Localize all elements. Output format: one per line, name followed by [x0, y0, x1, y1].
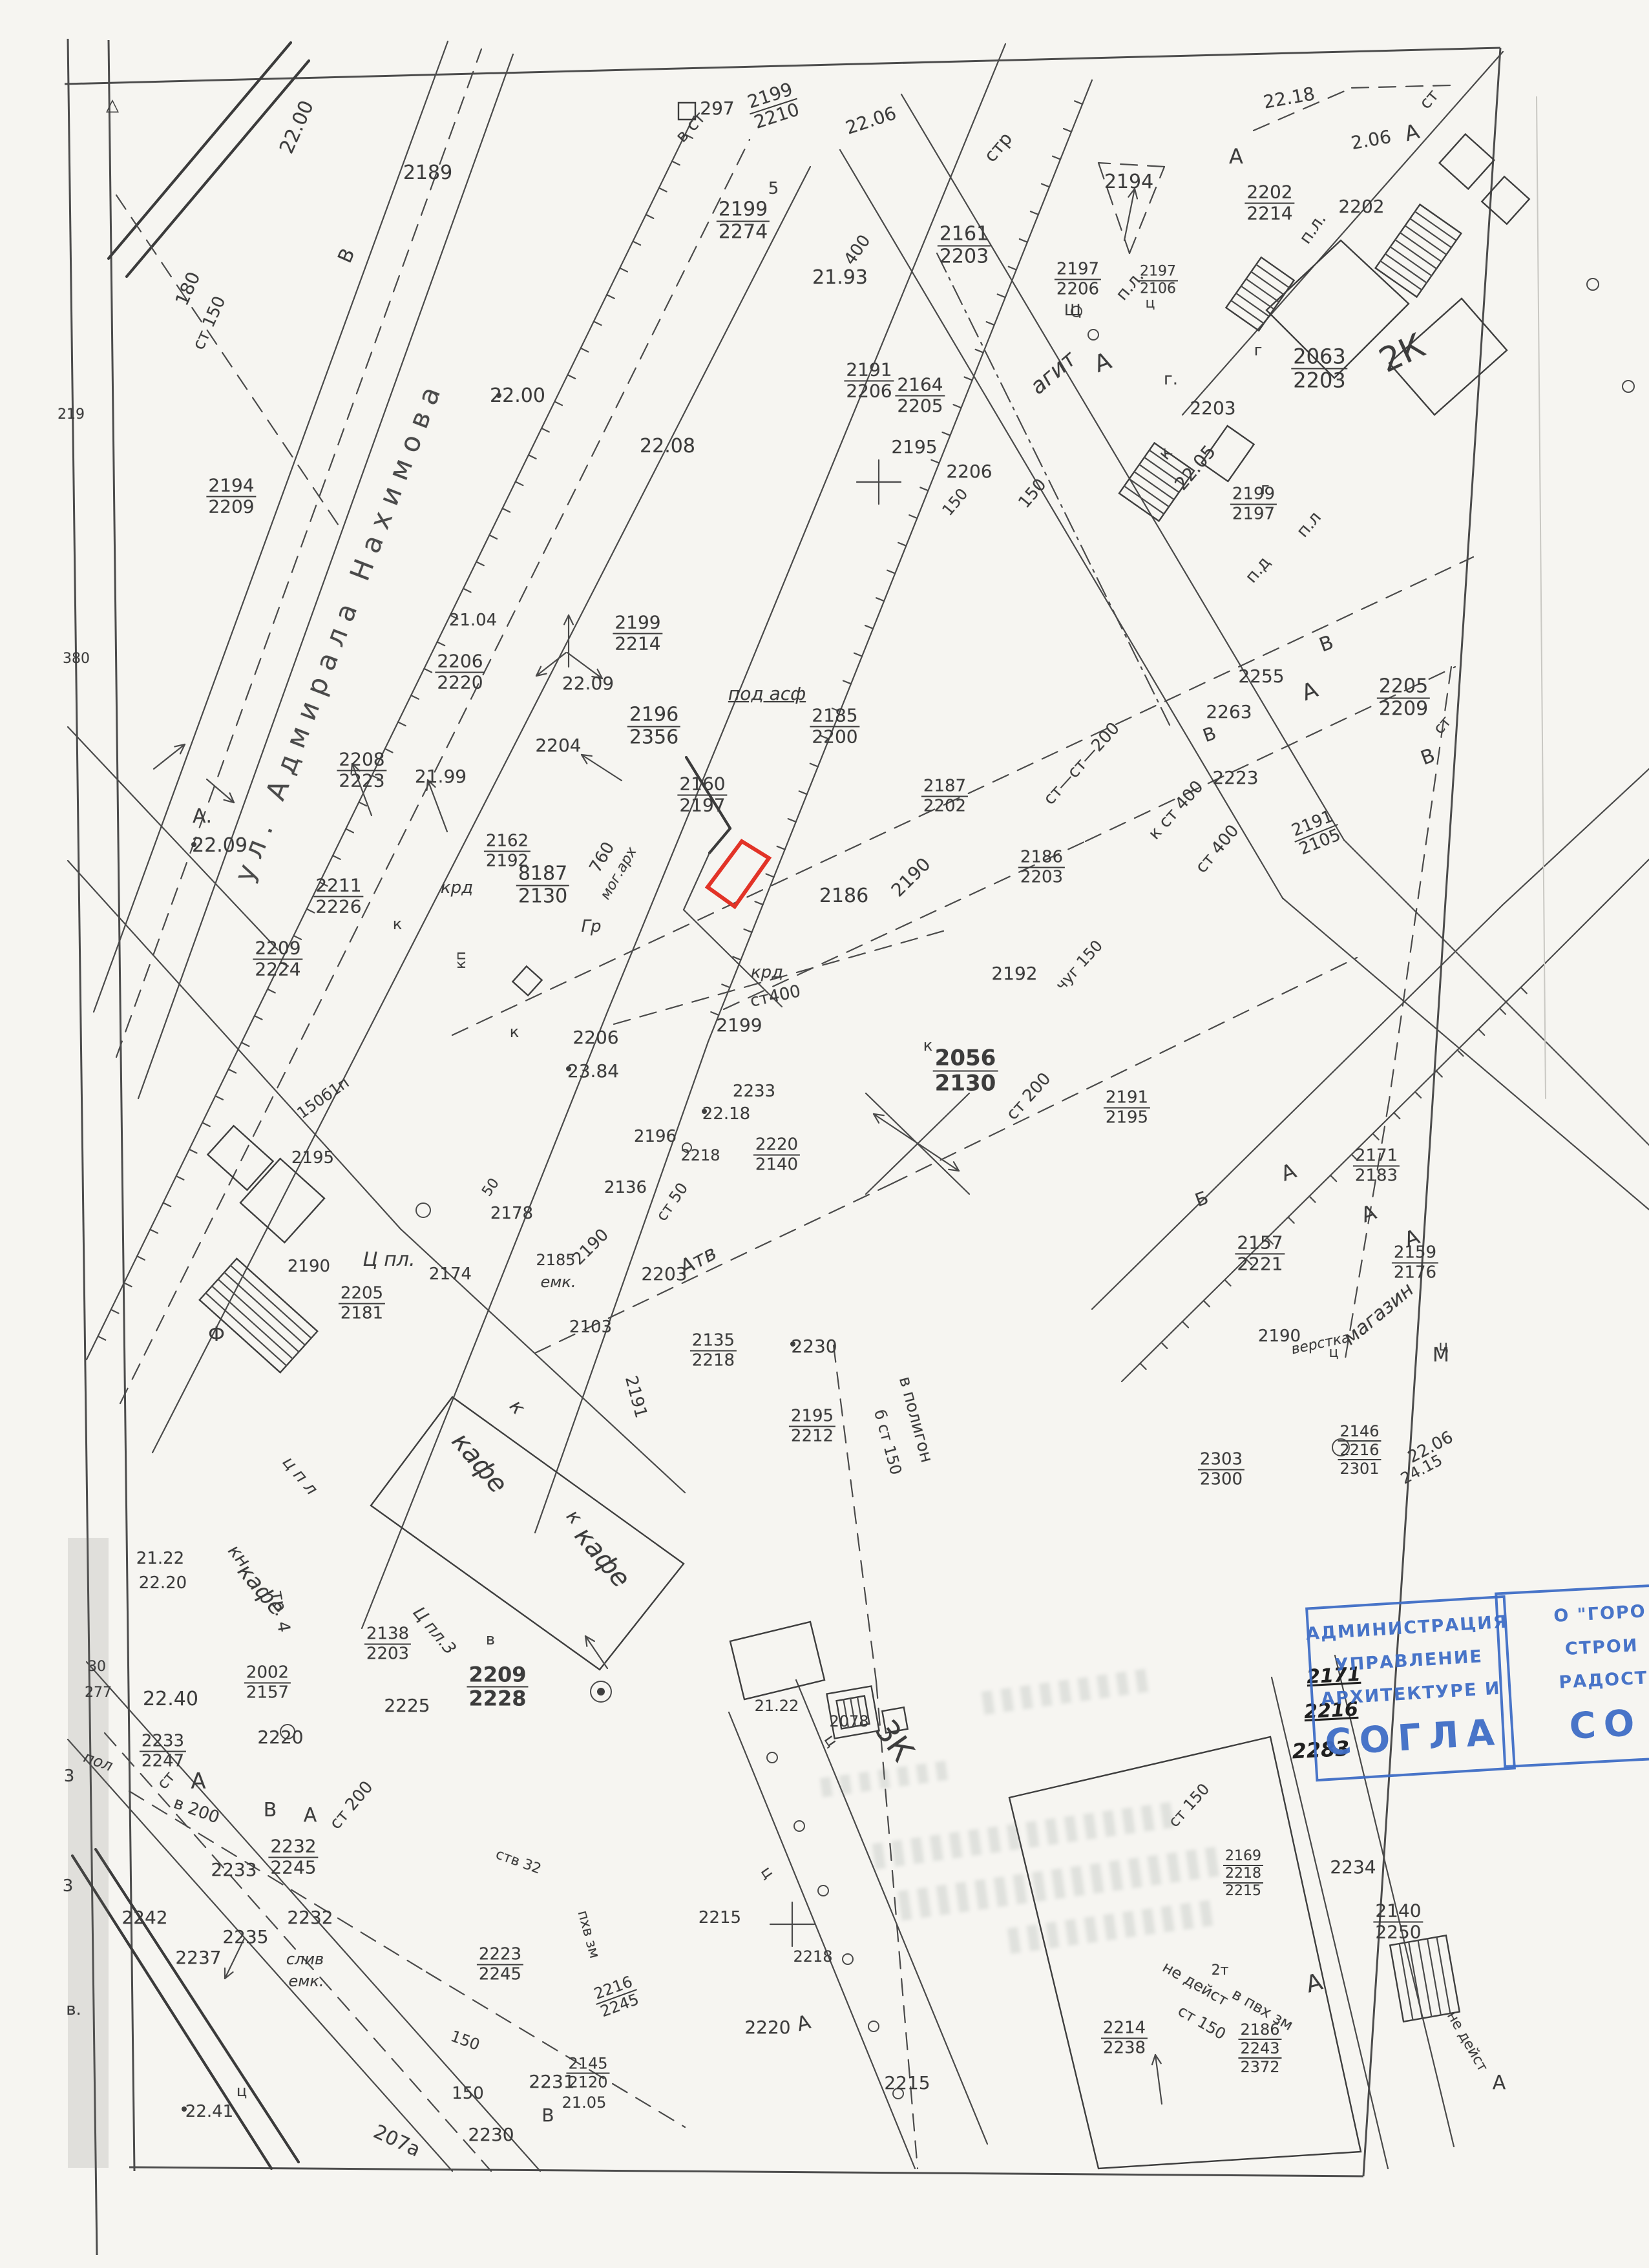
map-label: 21992214	[613, 614, 662, 653]
map-label: 23032300	[1198, 1451, 1245, 1488]
road-line	[1537, 97, 1546, 1098]
well-circle	[1587, 278, 1599, 290]
map-label: под асф	[728, 685, 806, 703]
elevation-value: 2164	[895, 376, 945, 397]
fence-tick	[620, 268, 627, 272]
stamp-right-big-text: СО	[1568, 1702, 1643, 1748]
map-label: 2195	[291, 1150, 334, 1166]
fence-tick	[865, 625, 873, 629]
map-label: крд	[441, 879, 473, 896]
stamp-text-line: УПРАВЛЕНИЕ	[1334, 1646, 1484, 1675]
map-label: △	[106, 97, 119, 114]
fence-tick	[755, 901, 763, 905]
elevation-value: 2245	[270, 1859, 316, 1877]
elevation-value: 2214	[1246, 205, 1292, 223]
elevation-value: 2197	[1138, 265, 1178, 282]
fence-tick	[1224, 1280, 1230, 1286]
utility-line	[1352, 85, 1451, 88]
elevation-value: 2160	[677, 775, 727, 796]
utility-line	[937, 253, 1170, 725]
elevation-value: 2187	[921, 778, 968, 797]
map-label: 20562130	[933, 1047, 998, 1095]
map-label: 22052209	[1377, 677, 1430, 719]
fence-tick	[268, 989, 275, 993]
map-label: 297	[700, 100, 734, 118]
fence-tick	[346, 829, 353, 833]
map-label: 22.18	[702, 1106, 750, 1122]
map-label: 2234	[1330, 1858, 1376, 1876]
elevation-value: 2140	[1373, 1902, 1423, 1923]
elevation-value: 2205	[1377, 677, 1430, 699]
map-label: А	[1229, 146, 1243, 167]
fence-tick	[1031, 211, 1038, 215]
elevation-value: 2209	[467, 1664, 528, 1688]
elevation-value: 2301	[1339, 1461, 1379, 1476]
approval-stamp-right: О "ГОРОСТРОИРАДОСТ СО	[1495, 1582, 1649, 1768]
map-label: В	[264, 1801, 277, 1820]
elevation-value: 2202	[923, 798, 966, 815]
elevation-value: 2238	[1103, 2040, 1146, 2057]
elevation-value: 2221	[1237, 1255, 1283, 1274]
fence-tick	[876, 598, 884, 601]
fence-tick	[788, 819, 796, 822]
highlighted-parcel	[708, 841, 769, 907]
fence-tick	[920, 487, 928, 490]
utility-line	[834, 1345, 876, 1681]
utility-line	[116, 49, 481, 1057]
map-label: 2190	[288, 1258, 330, 1275]
map-label: 22202140	[753, 1137, 800, 1173]
map-label: 216922182215	[1223, 1849, 1263, 1898]
map-label: 2255	[1238, 667, 1284, 686]
map-label: А	[191, 1770, 205, 1792]
elevation-value: 2130	[935, 1073, 996, 1095]
map-label: В	[541, 2106, 554, 2125]
map-label: 22142238	[1101, 2020, 1148, 2057]
elevation-value: 2303	[1198, 1451, 1245, 1471]
elevation-value: 2203	[940, 247, 989, 267]
building-hatch	[1124, 486, 1164, 514]
building-outline	[1376, 204, 1462, 297]
stamp-text-line: СТРОИ	[1564, 1635, 1639, 1659]
fence-tick	[766, 874, 774, 877]
fence-tick	[953, 404, 961, 408]
elevation-value: 2176	[1394, 1265, 1436, 1281]
fence-tick	[633, 241, 640, 245]
map-label: А.	[193, 807, 212, 826]
elevation-value: 2243	[1238, 2041, 1281, 2059]
elevation-value: 2196	[627, 706, 680, 728]
well-circle	[1623, 381, 1634, 392]
well-circle	[843, 1954, 853, 1964]
map-label: 5	[768, 180, 779, 197]
map-label: 2232	[287, 1909, 333, 1927]
map-label: кп	[454, 951, 468, 969]
elevation-value: 2224	[255, 961, 300, 979]
map-label: 81872130	[516, 865, 569, 907]
elevation-value: 2212	[791, 1428, 834, 1445]
map-label: ц	[1146, 297, 1155, 311]
elevation-value: 2197	[1232, 506, 1275, 523]
road-line	[709, 828, 730, 853]
road-line	[127, 61, 309, 277]
elevation-value: 2195	[1106, 1109, 1148, 1126]
fence-tick	[163, 1202, 171, 1206]
map-label: 22.08	[640, 437, 695, 456]
fence-tick	[437, 642, 445, 646]
elevation-value: 2218	[692, 1352, 735, 1369]
map-label: 21.99	[415, 768, 467, 786]
elevation-value: 2205	[897, 397, 943, 415]
map-label: 21972206	[1055, 261, 1101, 298]
map-label: 20022157	[244, 1664, 291, 1701]
left-margin-shading	[68, 1538, 109, 2168]
map-label: 2136	[604, 1179, 647, 1196]
road-line	[109, 43, 291, 258]
elevation-value: 2247	[142, 1753, 184, 1770]
map-label: 21.22	[755, 1698, 799, 1714]
fence-tick	[998, 294, 1005, 297]
arrow-line	[582, 755, 622, 781]
map-label: 150	[452, 2085, 484, 2102]
map-label: 21992274	[717, 200, 770, 242]
map-label: ц	[1439, 1339, 1449, 1354]
road-line	[607, 44, 1005, 1012]
fence-tick	[1521, 987, 1527, 993]
fence-tick	[1478, 1029, 1484, 1035]
building-hatch	[1129, 479, 1169, 507]
map-label: 2178	[490, 1205, 533, 1222]
map-label: к	[510, 1024, 520, 1040]
well-circle	[416, 1203, 430, 1217]
map-label: 2263	[1206, 703, 1252, 721]
building-hatch	[1241, 286, 1274, 310]
elevation-value: 2203	[1020, 869, 1063, 886]
fence-tick	[228, 1069, 236, 1073]
map-label: 21872202	[921, 778, 968, 815]
fence-tick	[1053, 156, 1060, 160]
fence-tick	[1436, 1071, 1442, 1076]
map-label: крд	[751, 964, 783, 981]
map-label: 21352218	[690, 1332, 737, 1369]
fence-tick	[744, 929, 751, 932]
fence-tick	[150, 1230, 158, 1234]
fence-tick	[255, 1016, 262, 1020]
map-label: 22232245	[477, 1946, 523, 1983]
map-label: к	[923, 1038, 933, 1053]
fence-tick	[1075, 101, 1082, 104]
elevation-value: 2233	[140, 1733, 186, 1752]
fence-tick	[1394, 1113, 1400, 1118]
map-label: 21.22	[136, 1550, 184, 1567]
fence-tick	[722, 984, 730, 987]
elevation-value: 2200	[812, 728, 857, 746]
map-label: А	[304, 1806, 317, 1825]
elevation-value: 2203	[366, 1646, 409, 1663]
map-label: 2204	[535, 737, 581, 755]
arrow-line	[585, 1636, 607, 1668]
fence-tick	[854, 653, 862, 656]
map-label: ц	[1329, 1346, 1339, 1360]
fence-tick	[489, 535, 497, 539]
map-label: 2233	[211, 1861, 257, 1879]
map-label: 21912195	[1104, 1089, 1150, 1126]
map-label: 2194	[1104, 173, 1153, 192]
elevation-value: 2300	[1200, 1471, 1243, 1488]
elevation-value: 2209	[208, 498, 254, 516]
fence-tick	[215, 1096, 223, 1100]
map-frame-line	[129, 2167, 1363, 2176]
fence-tick	[333, 856, 341, 859]
map-label: 2215	[884, 2074, 930, 2092]
map-label: 21.05	[562, 2095, 607, 2110]
fence-tick	[124, 1283, 132, 1286]
fence-tick	[810, 764, 818, 767]
arrow-line	[154, 744, 185, 769]
road-line	[1122, 971, 1538, 1381]
map-label: 2185	[536, 1252, 575, 1268]
fence-tick	[424, 669, 432, 673]
fence-tick	[1042, 184, 1049, 187]
elevation-value: 2157	[1235, 1234, 1285, 1255]
fence-tick	[1161, 1343, 1167, 1349]
map-label: 22022214	[1245, 184, 1294, 223]
elevation-value: 2002	[244, 1664, 291, 1684]
fence-tick	[1500, 1008, 1506, 1014]
map-frame-line	[109, 40, 134, 2171]
map-label: 22082223	[337, 751, 386, 790]
fence-tick	[976, 350, 983, 353]
elevation-value: 2245	[479, 1966, 521, 1983]
map-label: А	[1493, 2074, 1506, 2093]
map-label: 22.00	[490, 386, 545, 406]
map-label: 22052181	[339, 1285, 385, 1322]
stamp-text-line: РАДОСТ	[1559, 1668, 1648, 1693]
building-hatch	[1236, 293, 1269, 317]
road-line	[68, 1739, 452, 2171]
map-label: 21852200	[810, 707, 859, 746]
elevation-value: 2199	[613, 614, 662, 635]
fence-tick	[1020, 239, 1027, 242]
map-label: 23.84	[567, 1062, 619, 1080]
map-label: 21912206	[844, 361, 894, 401]
map-label: 21712183	[1353, 1148, 1400, 1184]
road-line	[1283, 898, 1649, 1210]
map-label: Ф	[208, 1325, 225, 1345]
elevation-value: 2181	[341, 1305, 383, 1322]
building-outline	[371, 1397, 684, 1670]
stamp-text-line: АРХИТЕКТУРЕ И	[1321, 1679, 1502, 1710]
elevation-value: 2171	[1353, 1148, 1400, 1167]
elevation-value: 2223	[477, 1946, 523, 1966]
map-label: 22092224	[253, 940, 302, 979]
fence-tick	[843, 680, 851, 684]
fence-tick	[799, 791, 807, 794]
map-label: 2195	[891, 438, 937, 456]
fence-tick	[1204, 1301, 1210, 1307]
fence-tick	[463, 589, 471, 593]
point-dot	[597, 1688, 605, 1696]
map-frame-line	[65, 48, 1500, 84]
fence-tick	[529, 455, 536, 459]
elevation-value: 2195	[789, 1408, 835, 1427]
map-label: 2174	[429, 1266, 472, 1283]
utility-line	[1098, 163, 1164, 167]
map-label: 2т	[1212, 1964, 1229, 1978]
arrow-line	[428, 780, 447, 832]
map-label: 2230	[468, 2126, 514, 2144]
building-outline	[1440, 134, 1495, 189]
fence-tick	[1140, 1363, 1146, 1369]
map-label: 21862203	[1018, 849, 1065, 886]
elevation-value: 2140	[755, 1157, 798, 1173]
fence-tick	[607, 295, 614, 299]
map-label: 2220	[744, 2019, 790, 2037]
elevation-value: 2197	[1055, 261, 1101, 280]
map-label: ц	[236, 2083, 247, 2099]
elevation-value: 2205	[339, 1285, 385, 1305]
elevation-value: 2169	[1223, 1849, 1263, 1866]
fence-tick	[581, 348, 589, 352]
arrow-line	[916, 1142, 959, 1171]
map-label: 22062220	[435, 653, 485, 692]
road-line	[684, 853, 709, 910]
fence-tick	[476, 562, 484, 565]
map-label: 21602197	[677, 775, 727, 815]
fence-tick	[1415, 1092, 1421, 1098]
map-label: в	[486, 1632, 495, 1647]
map-label: 21402250	[1373, 1902, 1423, 1942]
road-line	[362, 1446, 434, 1628]
map-label: 22.09	[562, 675, 614, 693]
elevation-value: 2106	[1140, 282, 1176, 297]
map-label: Щ	[1064, 302, 1081, 318]
fence-tick	[659, 188, 667, 192]
map-label: 21612203	[938, 225, 991, 267]
elevation-value: 2214	[614, 635, 660, 653]
fence-tick	[594, 321, 602, 325]
map-label: 2189	[403, 163, 452, 183]
map-label: 21952212	[789, 1408, 835, 1445]
elevation-value: 2162	[484, 833, 530, 852]
arrow-head	[1152, 2055, 1155, 2064]
fence-tick	[1288, 1217, 1294, 1223]
well-circle	[1088, 330, 1098, 340]
arrow-line	[207, 779, 234, 803]
scanned-survey-plan-page: △22.002189180ст 150Вв стстр2194220922.00…	[0, 0, 1649, 2268]
elevation-value: 2186	[1018, 849, 1065, 868]
fence-tick	[777, 846, 785, 850]
map-label: Ц пл.	[362, 1250, 415, 1270]
well-circle	[767, 1752, 777, 1763]
map-label: 3	[64, 1768, 75, 1785]
fence-tick	[942, 432, 950, 436]
map-label: 214622162301	[1338, 1423, 1381, 1476]
fence-tick	[189, 1150, 197, 1153]
map-label: 22322245	[268, 1838, 318, 1877]
elevation-value: 2203	[1293, 370, 1345, 391]
elevation-value: 2211	[313, 877, 363, 898]
building-hatch	[1246, 279, 1279, 302]
well-circle	[818, 1885, 828, 1896]
approval-stamp-left: АДМИНИСТРАЦИЯУПРАВЛЕНИЕАРХИТЕКТУРЕ И СОГ…	[1305, 1595, 1516, 1781]
fence-tick	[1064, 129, 1071, 132]
fence-tick	[359, 802, 366, 806]
road-line	[1538, 859, 1649, 971]
fence-tick	[898, 543, 906, 546]
fence-tick	[554, 401, 562, 405]
map-label: 2231	[529, 2073, 574, 2091]
stamp-text-line: АДМИНИСТРАЦИЯ	[1305, 1612, 1508, 1644]
elevation-value: 2063	[1291, 346, 1347, 370]
map-label: 2196	[634, 1128, 677, 1145]
arrow-line	[874, 1114, 916, 1142]
elevation-value: 2191	[1104, 1089, 1150, 1109]
elevation-value: 2228	[468, 1688, 526, 1709]
map-label: г	[1254, 342, 1263, 358]
fence-tick	[1309, 1196, 1315, 1202]
elevation-value: 2194	[206, 477, 256, 498]
map-label: 21972106	[1138, 265, 1178, 297]
elevation-value: 2220	[753, 1137, 800, 1156]
map-label: 3	[63, 1878, 74, 1895]
elevation-value: 2209	[1379, 700, 1428, 719]
map-label: 2192	[991, 965, 1037, 983]
map-label: 30	[88, 1660, 106, 1674]
map-label: 380	[63, 652, 90, 666]
map-label: 21942209	[206, 477, 256, 516]
elevation-value: 2161	[938, 225, 991, 247]
map-label: г.	[1261, 481, 1275, 498]
map-label: 2237	[175, 1949, 221, 1967]
map-label: 22332247	[140, 1733, 186, 1770]
map-label: 21642205	[895, 376, 945, 415]
map-label: 2223	[1212, 769, 1258, 787]
map-label: 219	[58, 408, 85, 422]
fence-tick	[672, 161, 680, 165]
map-label: емк.	[289, 1973, 324, 1989]
map-label: г.	[1164, 371, 1178, 388]
fence-tick	[111, 1310, 119, 1314]
well-circle	[794, 1821, 804, 1831]
elevation-value: 2183	[1355, 1168, 1398, 1184]
fence-tick	[1182, 1321, 1188, 1327]
map-label: 277	[85, 1686, 112, 1700]
map-label: 21572221	[1235, 1234, 1285, 1274]
elevation-value: 2250	[1375, 1924, 1421, 1942]
map-label: 2202	[1338, 198, 1384, 216]
map-label: 22.41	[185, 2103, 233, 2120]
fence-tick	[987, 322, 994, 325]
map-label: слив	[286, 1951, 324, 1967]
elevation-value: 2185	[810, 707, 859, 728]
elevation-value: 2206	[1056, 281, 1099, 298]
stamp-left-big-text: СОГЛА	[1324, 1712, 1504, 1765]
elevation-value: 2232	[268, 1838, 318, 1858]
road-line	[138, 54, 513, 1098]
map-label: 2103	[569, 1319, 612, 1336]
map-label: 2225	[384, 1697, 430, 1715]
map-label: 2218	[793, 1949, 832, 1964]
elevation-value: 2138	[364, 1626, 411, 1645]
fence-tick	[965, 377, 972, 381]
elevation-value: 2209	[253, 940, 302, 960]
stamp-text-line: О "ГОРО	[1553, 1602, 1647, 1626]
map-label: Гр	[582, 918, 602, 935]
utility-line	[129, 1791, 426, 1972]
road-line	[1092, 905, 1503, 1309]
fence-tick	[1372, 1133, 1378, 1139]
